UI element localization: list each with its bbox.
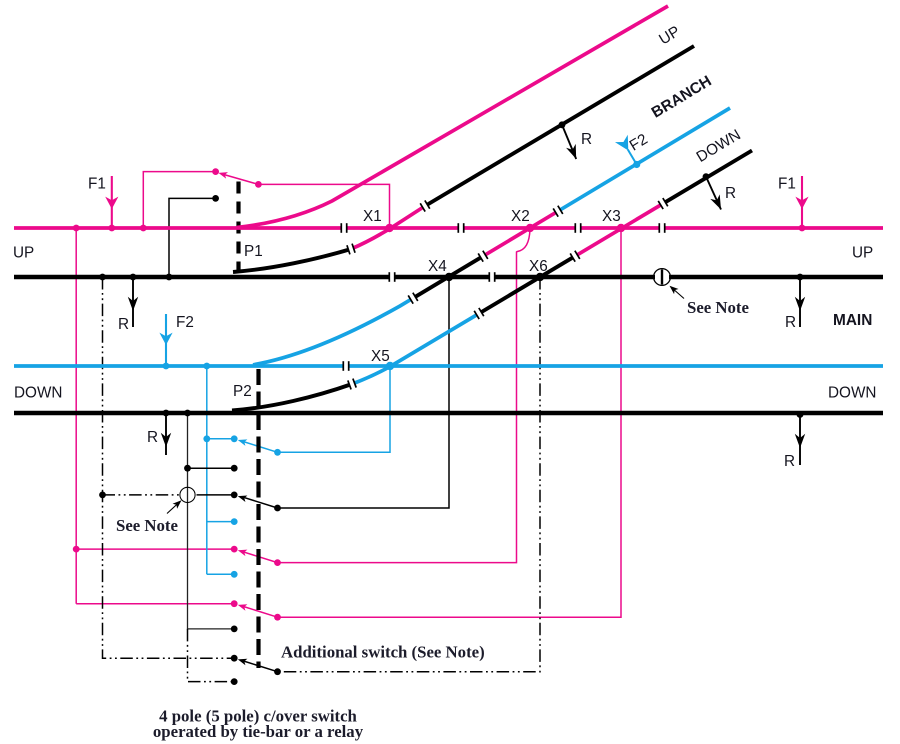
svg-text:F2: F2 [176, 314, 194, 331]
svg-text:F1: F1 [88, 176, 106, 193]
svg-text:R: R [118, 316, 129, 333]
svg-text:X3: X3 [602, 208, 621, 225]
svg-text:P1: P1 [244, 243, 263, 260]
svg-text:X4: X4 [428, 258, 447, 275]
svg-text:operated by tie-bar or a relay: operated by tie-bar or a relay [153, 722, 364, 741]
svg-text:X2: X2 [511, 208, 530, 225]
svg-text:R: R [785, 314, 796, 331]
svg-text:DOWN: DOWN [14, 385, 62, 402]
svg-text:R: R [581, 131, 592, 148]
svg-text:R: R [147, 429, 158, 446]
svg-text:R: R [784, 453, 795, 470]
svg-text:MAIN: MAIN [833, 312, 872, 329]
svg-text:P2: P2 [233, 383, 252, 400]
svg-text:UP: UP [852, 245, 873, 262]
svg-text:DOWN: DOWN [828, 385, 876, 402]
svg-text:See Note: See Note [116, 516, 179, 535]
svg-text:R: R [725, 185, 736, 202]
svg-text:Additional switch (See Note): Additional switch (See Note) [281, 643, 485, 662]
svg-text:X1: X1 [363, 208, 382, 225]
svg-text:X5: X5 [371, 348, 390, 365]
svg-text:See Note: See Note [687, 298, 750, 317]
svg-text:X6: X6 [529, 258, 548, 275]
svg-text:UP: UP [13, 245, 34, 262]
svg-text:F1: F1 [778, 176, 796, 193]
